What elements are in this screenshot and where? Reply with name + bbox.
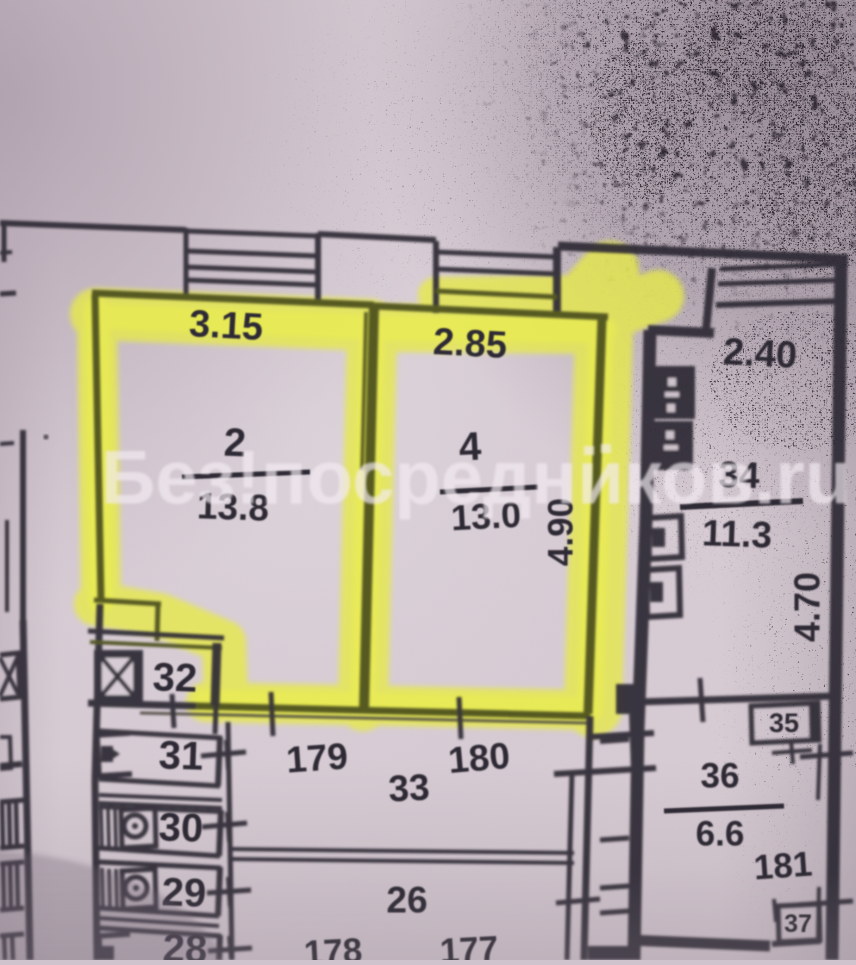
svg-text:6.6: 6.6	[696, 815, 745, 854]
svg-text:2.85: 2.85	[432, 321, 508, 367]
svg-text:180: 180	[446, 735, 511, 781]
svg-text:Без!посредников.ru: Без!посредников.ru	[101, 436, 851, 521]
svg-text:32: 32	[152, 655, 198, 701]
svg-text:33: 33	[387, 766, 430, 809]
svg-text:4.70: 4.70	[787, 572, 828, 642]
svg-text:35: 35	[769, 708, 799, 738]
svg-text:31: 31	[158, 733, 204, 779]
svg-text:2.40: 2.40	[722, 331, 798, 377]
svg-text:179: 179	[285, 735, 349, 780]
svg-text:30: 30	[158, 805, 204, 851]
svg-text:3.15: 3.15	[188, 303, 264, 349]
svg-text:36: 36	[701, 757, 740, 796]
